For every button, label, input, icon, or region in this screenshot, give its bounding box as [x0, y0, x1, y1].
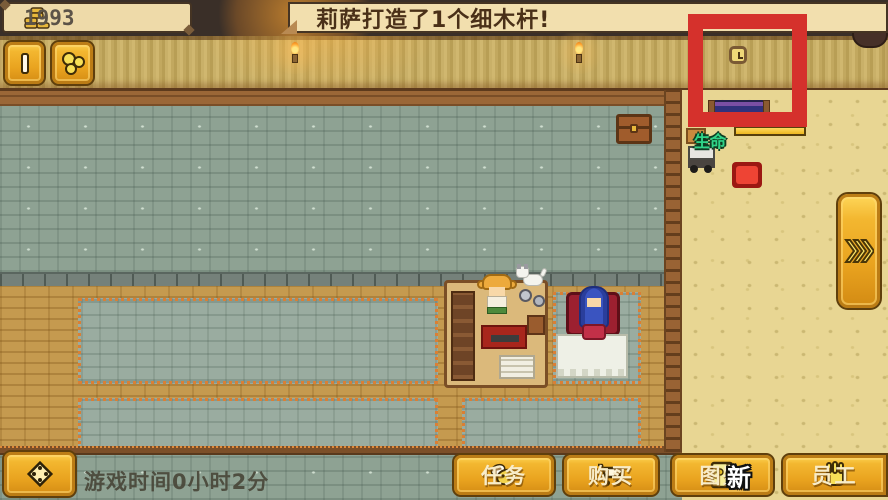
craft-resources-button[interactable] [50, 40, 95, 86]
floor-edge-row [0, 272, 666, 286]
chest-clasp [630, 124, 638, 133]
triple-chevron-icon [844, 238, 874, 264]
cart-wheel [690, 165, 698, 173]
jar [533, 295, 545, 307]
dog-ear [517, 264, 521, 269]
blueprint-papers [499, 355, 535, 379]
stone-floor [0, 106, 666, 272]
buy-label: 购买 [588, 460, 634, 490]
treasure-chest[interactable] [616, 114, 652, 144]
fast-forward-button[interactable] [836, 192, 882, 310]
health-bar-fill [736, 128, 804, 134]
anvil [491, 335, 519, 342]
pause-button[interactable] [3, 40, 46, 86]
wall-torch-icon [574, 42, 584, 64]
customer-face [587, 298, 601, 307]
customer-dress [582, 324, 606, 340]
cart-wheel [704, 165, 712, 173]
dog[interactable] [516, 264, 546, 290]
stone-inset [78, 398, 438, 452]
stone-inset [78, 298, 438, 384]
red-item-core [736, 166, 758, 184]
wall-torch-icon [290, 42, 300, 64]
crafter-face [489, 287, 505, 296]
health-bar [734, 126, 806, 136]
customer-hair [579, 286, 609, 328]
diamond-dots-icon [23, 457, 57, 491]
torch-flame [575, 42, 583, 54]
customer-npc[interactable] [574, 286, 614, 344]
red-item[interactable] [732, 162, 762, 188]
tasks-label: 任务 [481, 460, 527, 490]
station-crate [527, 315, 545, 335]
jar [519, 289, 532, 302]
torch-flame [291, 42, 299, 54]
work-mat [481, 325, 527, 349]
station-shelf [451, 291, 475, 381]
pause-icon [21, 53, 29, 74]
crafter-npc[interactable] [480, 274, 514, 326]
money-panel[interactable]: 1993 [2, 2, 192, 33]
torch-holder [576, 54, 582, 63]
ladder-divider [664, 90, 682, 452]
staff-button[interactable]: 员工 [781, 453, 888, 497]
annotation-rectangle [688, 14, 807, 127]
crafter-apron [487, 307, 507, 314]
buy-button[interactable]: 购买 [562, 453, 660, 497]
stone-inset [462, 398, 641, 452]
dog-ear [524, 264, 528, 269]
torch-holder [292, 54, 298, 63]
panel-corner [0, 0, 11, 11]
game-time-text: 游戏时间0小时2分 [84, 466, 269, 496]
new-badge: 新 [727, 458, 751, 493]
game-screen: 生命 [0, 0, 888, 500]
catalog-button[interactable]: 图鉴 [670, 453, 775, 497]
tablecloth-fringe [558, 369, 626, 376]
gold-nuggets-icon [59, 50, 87, 76]
tasks-button[interactable]: 任务 [452, 453, 556, 497]
staff-label: 员工 [812, 460, 858, 490]
banner-text: 莉萨打造了1个细木杆! [316, 2, 550, 34]
money-value: 1993 [24, 6, 75, 30]
move-mode-button[interactable] [2, 450, 77, 498]
health-label: 生命 [694, 128, 726, 152]
